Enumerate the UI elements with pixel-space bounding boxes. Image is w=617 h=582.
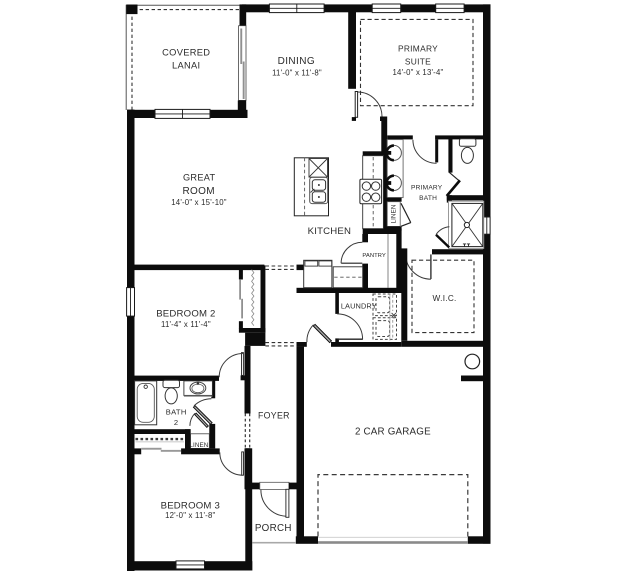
svg-text:14'-0" x 15'-10": 14'-0" x 15'-10" xyxy=(171,198,227,207)
svg-text:PRIMARY: PRIMARY xyxy=(398,44,438,54)
svg-text:2 CAR GARAGE: 2 CAR GARAGE xyxy=(355,426,431,437)
svg-text:GREAT: GREAT xyxy=(183,172,216,182)
svg-text:LAUNDRY: LAUNDRY xyxy=(341,302,377,311)
svg-text:12'-0" x 11'-8": 12'-0" x 11'-8" xyxy=(165,511,215,520)
svg-text:14'-0" x 13'-4": 14'-0" x 13'-4" xyxy=(393,68,444,77)
svg-text:2: 2 xyxy=(174,418,179,427)
svg-text:DINING: DINING xyxy=(278,56,315,67)
svg-text:SUITE: SUITE xyxy=(405,57,431,67)
svg-text:11'-0" x 11'-8": 11'-0" x 11'-8" xyxy=(272,69,322,78)
svg-text:BEDROOM 3: BEDROOM 3 xyxy=(161,501,220,512)
svg-text:BATH: BATH xyxy=(166,408,187,417)
svg-text:FOYER: FOYER xyxy=(258,410,290,420)
svg-text:BEDROOM 2: BEDROOM 2 xyxy=(156,309,215,320)
svg-text:PANTRY: PANTRY xyxy=(362,253,385,259)
svg-text:W.I.C.: W.I.C. xyxy=(433,294,457,303)
svg-text:LINEN: LINEN xyxy=(390,204,397,223)
svg-text:ROOM: ROOM xyxy=(183,186,215,197)
svg-text:PRIMARY: PRIMARY xyxy=(411,184,443,191)
svg-text:LANAI: LANAI xyxy=(172,61,200,71)
svg-text:COVERED: COVERED xyxy=(162,48,210,58)
svg-text:BATH: BATH xyxy=(419,195,437,202)
svg-text:KITCHEN: KITCHEN xyxy=(308,226,352,237)
svg-text:11'-4" x 11'-4": 11'-4" x 11'-4" xyxy=(161,320,211,329)
svg-text:LINEN: LINEN xyxy=(189,442,208,449)
svg-text:PORCH: PORCH xyxy=(255,523,292,534)
